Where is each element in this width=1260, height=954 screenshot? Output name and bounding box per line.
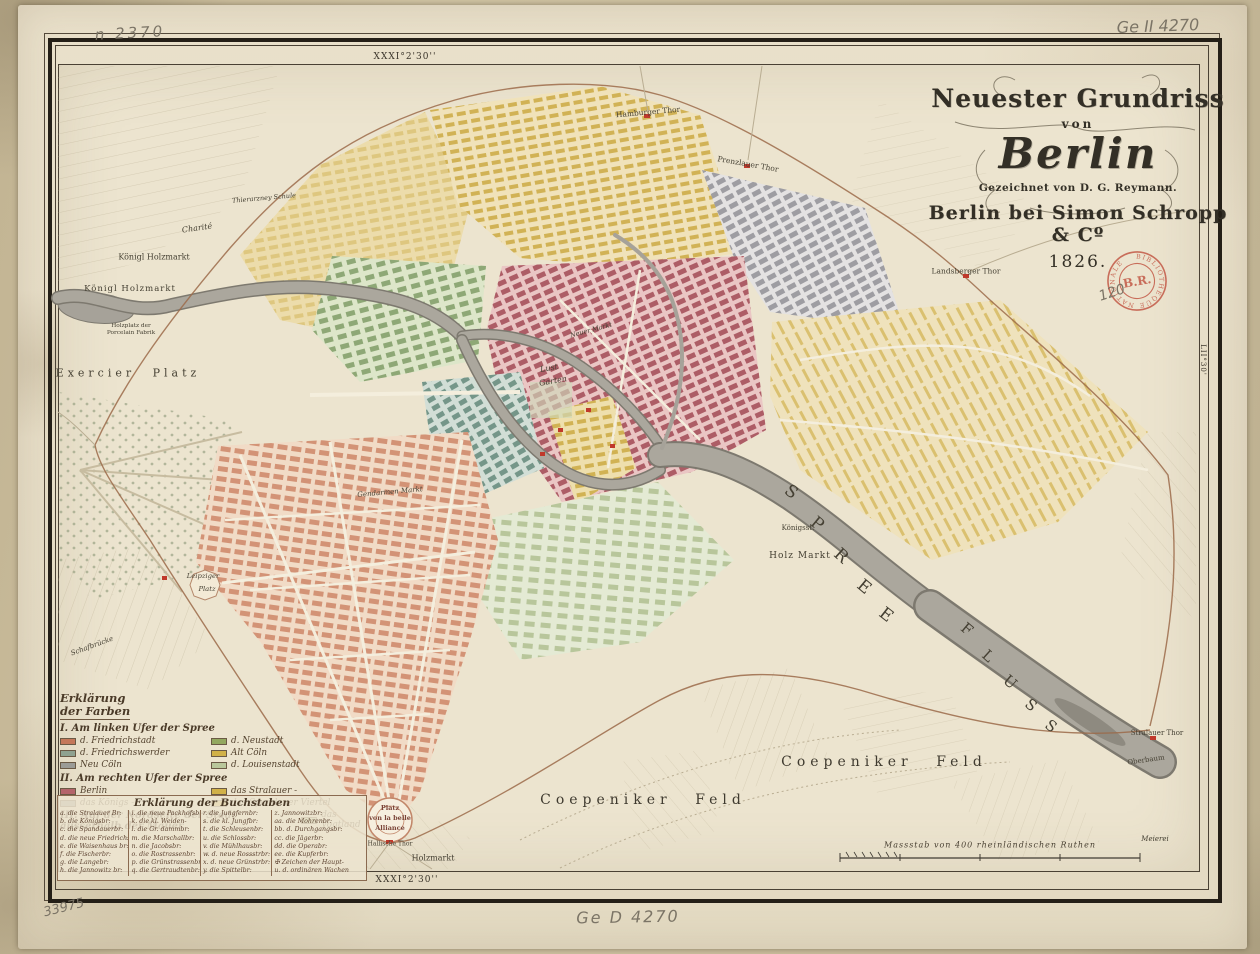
label-koenigl-holzmarkt-2: Königl Holzmarkt	[84, 284, 176, 294]
legend-letter-entry: q. die Gertraudtenbr:	[131, 867, 197, 875]
legend-letter-entry: z. Jannowitzbr:	[274, 810, 364, 818]
legend-letter-entry: u. die Schlossbr:	[203, 835, 269, 843]
legend-letter-entry: c. die Spandauerbr:	[60, 826, 126, 834]
legend-letters-title: Erklärung der Buchstaben	[58, 797, 366, 809]
annotation-top-left: n 2370	[94, 22, 165, 44]
map-author: Gezeichnet von D. G. Reymann.	[928, 182, 1228, 194]
color-swatch	[211, 738, 227, 745]
annotation-shelfmark-top: Ge II 4270	[1116, 15, 1199, 37]
legend-color-label: d. Neustadt	[231, 736, 283, 746]
label-hallisches-thor: Hallische Thor	[368, 841, 413, 848]
legend-colors-title: Erklärung der Farben	[60, 692, 362, 720]
label-leipziger: Leipziger	[187, 572, 219, 580]
legend-letters-grid: a. die Stralauer Br:b. die Königsbr:c. d…	[58, 810, 366, 876]
legend-letter-entry: s. die kl. Jungfbr:	[203, 818, 269, 826]
label-holzmarkt-south: Holzmarkt	[412, 854, 455, 863]
label-landsberger-thor: Landsberger Thor	[932, 267, 1001, 276]
label-exercier-platz: Exercier Platz	[56, 367, 201, 380]
label-coepeniker-feld-west: Coepeniker Feld	[540, 792, 746, 808]
legend-letter-entry: v. die Mühlhausbr:	[203, 843, 269, 851]
legend-letter-entry: bb. d. Durchgangsbr:	[274, 826, 364, 834]
legend-colors-title-line1: Erklärung	[60, 691, 125, 705]
map-title-line3: Berlin	[928, 129, 1228, 178]
legend-color-entry: d. Louisenstadt	[211, 760, 362, 770]
label-meierei: Meierei	[1141, 835, 1168, 843]
label-coepeniker-feld-east: Coepeniker Feld	[781, 754, 987, 770]
legend-letter-entry: w. d. neue Rossstrbr:	[203, 851, 269, 859]
label-belle-alliance-2: von la belle	[369, 814, 411, 822]
legend-letter-entry: aa. die Mohrenbr:	[274, 818, 364, 826]
annotation-shelfmark-bottom: Ge D 4270	[576, 907, 680, 928]
svg-text:B.R.: B.R.	[1122, 272, 1152, 291]
label-holzplatz-porcelain: Holzplatz der Porcelain Fabrik	[105, 323, 157, 337]
legend-letter-entry: h. die Jannowitz br:	[60, 867, 126, 875]
legend-letters-col1: a. die Stralauer Br:b. die Königsbr:c. d…	[58, 810, 128, 876]
legend-letter-entry: g. die Langebr:	[60, 859, 126, 867]
legend-letter-entry: n. die Jacobsbr:	[131, 843, 197, 851]
meridian-label-top: XXXI°2'30''	[374, 52, 437, 62]
scanned-map-page: BIBLIOTHEQUE NATIONALE B.R. XXXI°2'30'' …	[0, 0, 1260, 954]
label-leipziger-platz: Platz	[198, 585, 215, 593]
legend-letter-entry: cc. die Jägerbr:	[274, 835, 364, 843]
legend-letter-entry: ✠ Zeichen der Haupt-	[274, 859, 364, 867]
color-swatch	[60, 788, 76, 795]
legend-letter-entry: x. d. neue Grünstrbr:	[203, 859, 269, 867]
legend-letter-entry: k. die kl. Weiden-	[131, 818, 197, 826]
label-belle-alliance-3: Alliance	[375, 824, 404, 832]
scale-bar	[840, 852, 1140, 862]
legend-color-label: d. Louisenstadt	[231, 760, 300, 770]
label-stralauer-thor: Stralauer Thor	[1131, 729, 1184, 737]
legend-letter-entry: b. die Königsbr:	[60, 818, 126, 826]
legend-section-heading: I. Am linken Ufer der Spree	[60, 723, 362, 734]
color-swatch	[211, 750, 227, 757]
legend-letters: Erklärung der Buchstaben a. die Stralaue…	[57, 795, 367, 881]
legend-letter-entry: m. die Marschallbr:	[131, 835, 197, 843]
legend-letter-entry: l. die Gr. dammbr:	[131, 826, 197, 834]
legend-letter-entry: d. die neue Friedrichsbr:	[60, 835, 126, 843]
map-title-line1: Neuester Grundriss	[928, 84, 1228, 113]
legend-letter-entry: o. die Rostrassenbr:	[131, 851, 197, 859]
legend-section-entries: d. Friedrichstadtd. Neustadtd. Friedrich…	[60, 734, 362, 770]
legend-letters-col3: r. die Jungfernbr:s. die kl. Jungfbr:t. …	[200, 810, 271, 876]
title-cartouche: Neuester Grundriss von Berlin Gezeichnet…	[928, 84, 1228, 272]
meridian-label-bottom: XXXI°2'30''	[376, 875, 439, 885]
legend-letters-col4: z. Jannowitzbr:aa. die Mohrenbr:bb. d. D…	[271, 810, 366, 876]
latitude-label-right: LII°30'	[1199, 344, 1207, 376]
legend-color-entry: Neu Cöln	[60, 760, 211, 770]
legend-letter-entry: e. die Waisenhaus br:	[60, 843, 126, 851]
color-swatch	[60, 762, 76, 769]
label-koenigl-holzmarkt-1: Königl Holzmarkt	[118, 253, 189, 262]
legend-color-entry: d. Friedrichstadt	[60, 736, 211, 746]
legend-letter-entry: i. die neue Packhofsbr:	[131, 810, 197, 818]
legend-color-label: d. Friedrichswerder	[80, 748, 169, 758]
legend-color-label: Alt Cöln	[231, 748, 267, 758]
legend-color-label: d. Friedrichstadt	[80, 736, 155, 746]
legend-letter-entry: p. die Grünstrassenbr:	[131, 859, 197, 867]
label-belle-alliance-1: Platz	[381, 804, 399, 812]
legend-letter-entry: dd. die Operabr:	[274, 843, 364, 851]
legend-letter-entry: f. die Fischerbr:	[60, 851, 126, 859]
color-swatch	[211, 788, 227, 795]
color-swatch	[60, 738, 76, 745]
legend-color-label: Neu Cöln	[80, 760, 122, 770]
map-publisher: Berlin bei Simon Schropp & Cº	[928, 202, 1228, 246]
legend-colors-title-line2: der Farben	[60, 705, 130, 720]
legend-letter-entry: a. die Stralauer Br:	[60, 810, 126, 818]
legend-letter-entry: t. die Schleusenbr:	[203, 826, 269, 834]
legend-color-entry: Alt Cöln	[211, 748, 362, 758]
label-holz-markt: Holz Markt	[769, 551, 831, 561]
legend-color-entry: d. Neustadt	[211, 736, 362, 746]
legend-letter-entry: y. die Spittelbr:	[203, 867, 269, 875]
legend-letter-entry: u. d. ordinären Wachen	[274, 867, 364, 875]
scale-bar-caption: Massstab von 400 rheinländischen Ruthen	[884, 841, 1096, 850]
color-swatch	[211, 762, 227, 769]
legend-color-entry: d. Friedrichswerder	[60, 748, 211, 758]
legend-letter-entry: r. die Jungfernbr:	[203, 810, 269, 818]
color-swatch	[60, 750, 76, 757]
legend-letters-col2: i. die neue Packhofsbr:k. die kl. Weiden…	[128, 810, 199, 876]
legend-letter-entry: ee. die Kupferbr:	[274, 851, 364, 859]
legend-section-heading: II. Am rechten Ufer der Spree	[60, 773, 362, 784]
